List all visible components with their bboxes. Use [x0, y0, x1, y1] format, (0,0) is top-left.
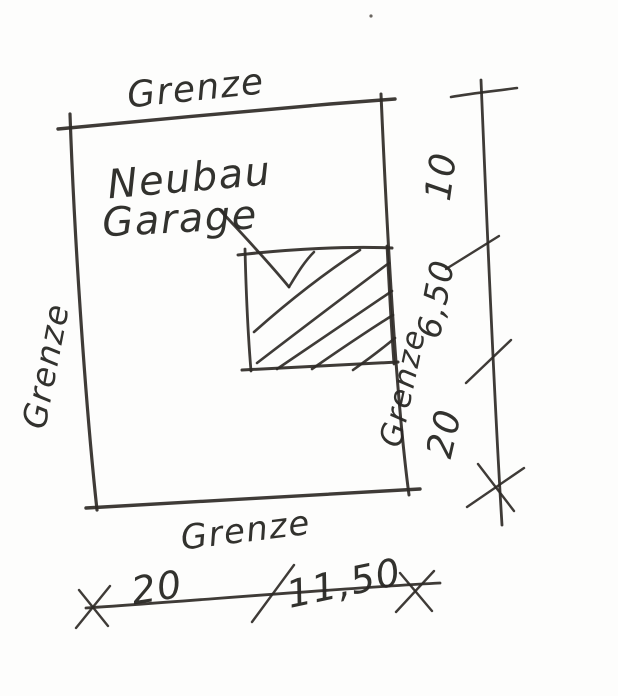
hatch-line: [312, 315, 393, 369]
garage-edge-left: [245, 249, 251, 371]
ink-speck: [369, 14, 372, 17]
dimension-value-bottom-right: 11,50: [283, 550, 406, 617]
dimension-tick: [466, 340, 511, 383]
boundary-label-bottom: Grenze: [178, 503, 312, 559]
garage-hatching: [254, 250, 395, 370]
dimension-tick: [478, 464, 514, 511]
boundary-edge-bottom: [86, 489, 420, 508]
annotation-garage: Garage: [101, 192, 259, 246]
boundary-label-top: Grenze: [125, 61, 266, 116]
dimension-line: [481, 80, 502, 525]
dimension-value-bottom-left: 20: [128, 562, 186, 613]
dimension-value-right-middle: 6,50: [409, 256, 462, 341]
scanned-sketch-page: Grenze Grenze Grenze Grenze Neubau Garag…: [0, 0, 618, 696]
dimension-tick: [451, 88, 517, 97]
dimension-value-right-top: 10: [418, 149, 465, 203]
boundary-label-left: Grenze: [14, 300, 77, 432]
leader-arrowhead: [289, 252, 314, 287]
site-plan-sketch: Grenze Grenze Grenze Grenze Neubau Garag…: [0, 0, 618, 696]
dimension-value-right-bottom: 20: [419, 405, 470, 462]
garage-outline: [238, 246, 398, 371]
hatch-line: [254, 250, 360, 332]
